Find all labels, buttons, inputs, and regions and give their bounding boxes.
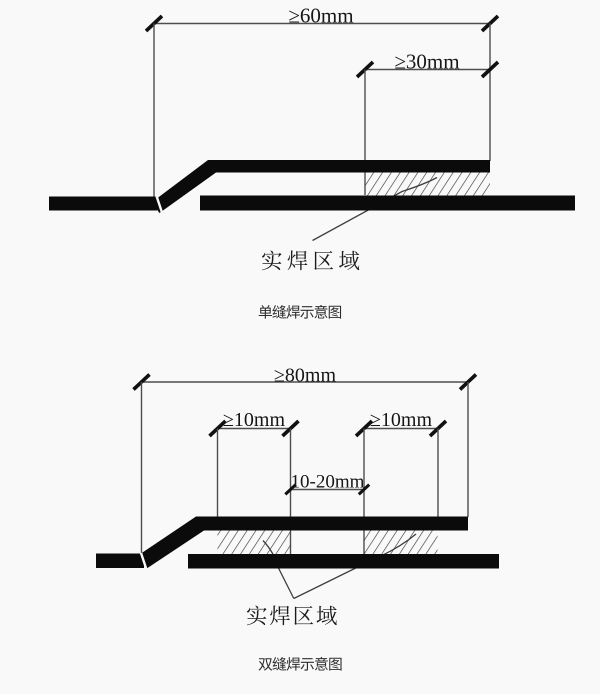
svg-text:≥80mm: ≥80mm bbox=[274, 364, 337, 386]
svg-text:≥10mm: ≥10mm bbox=[223, 409, 286, 431]
svg-text:≥10mm: ≥10mm bbox=[370, 409, 433, 431]
svg-text:10-20mm: 10-20mm bbox=[291, 472, 365, 493]
svg-text:≥30mm: ≥30mm bbox=[394, 49, 459, 73]
svg-text:≥60mm: ≥60mm bbox=[288, 3, 353, 27]
